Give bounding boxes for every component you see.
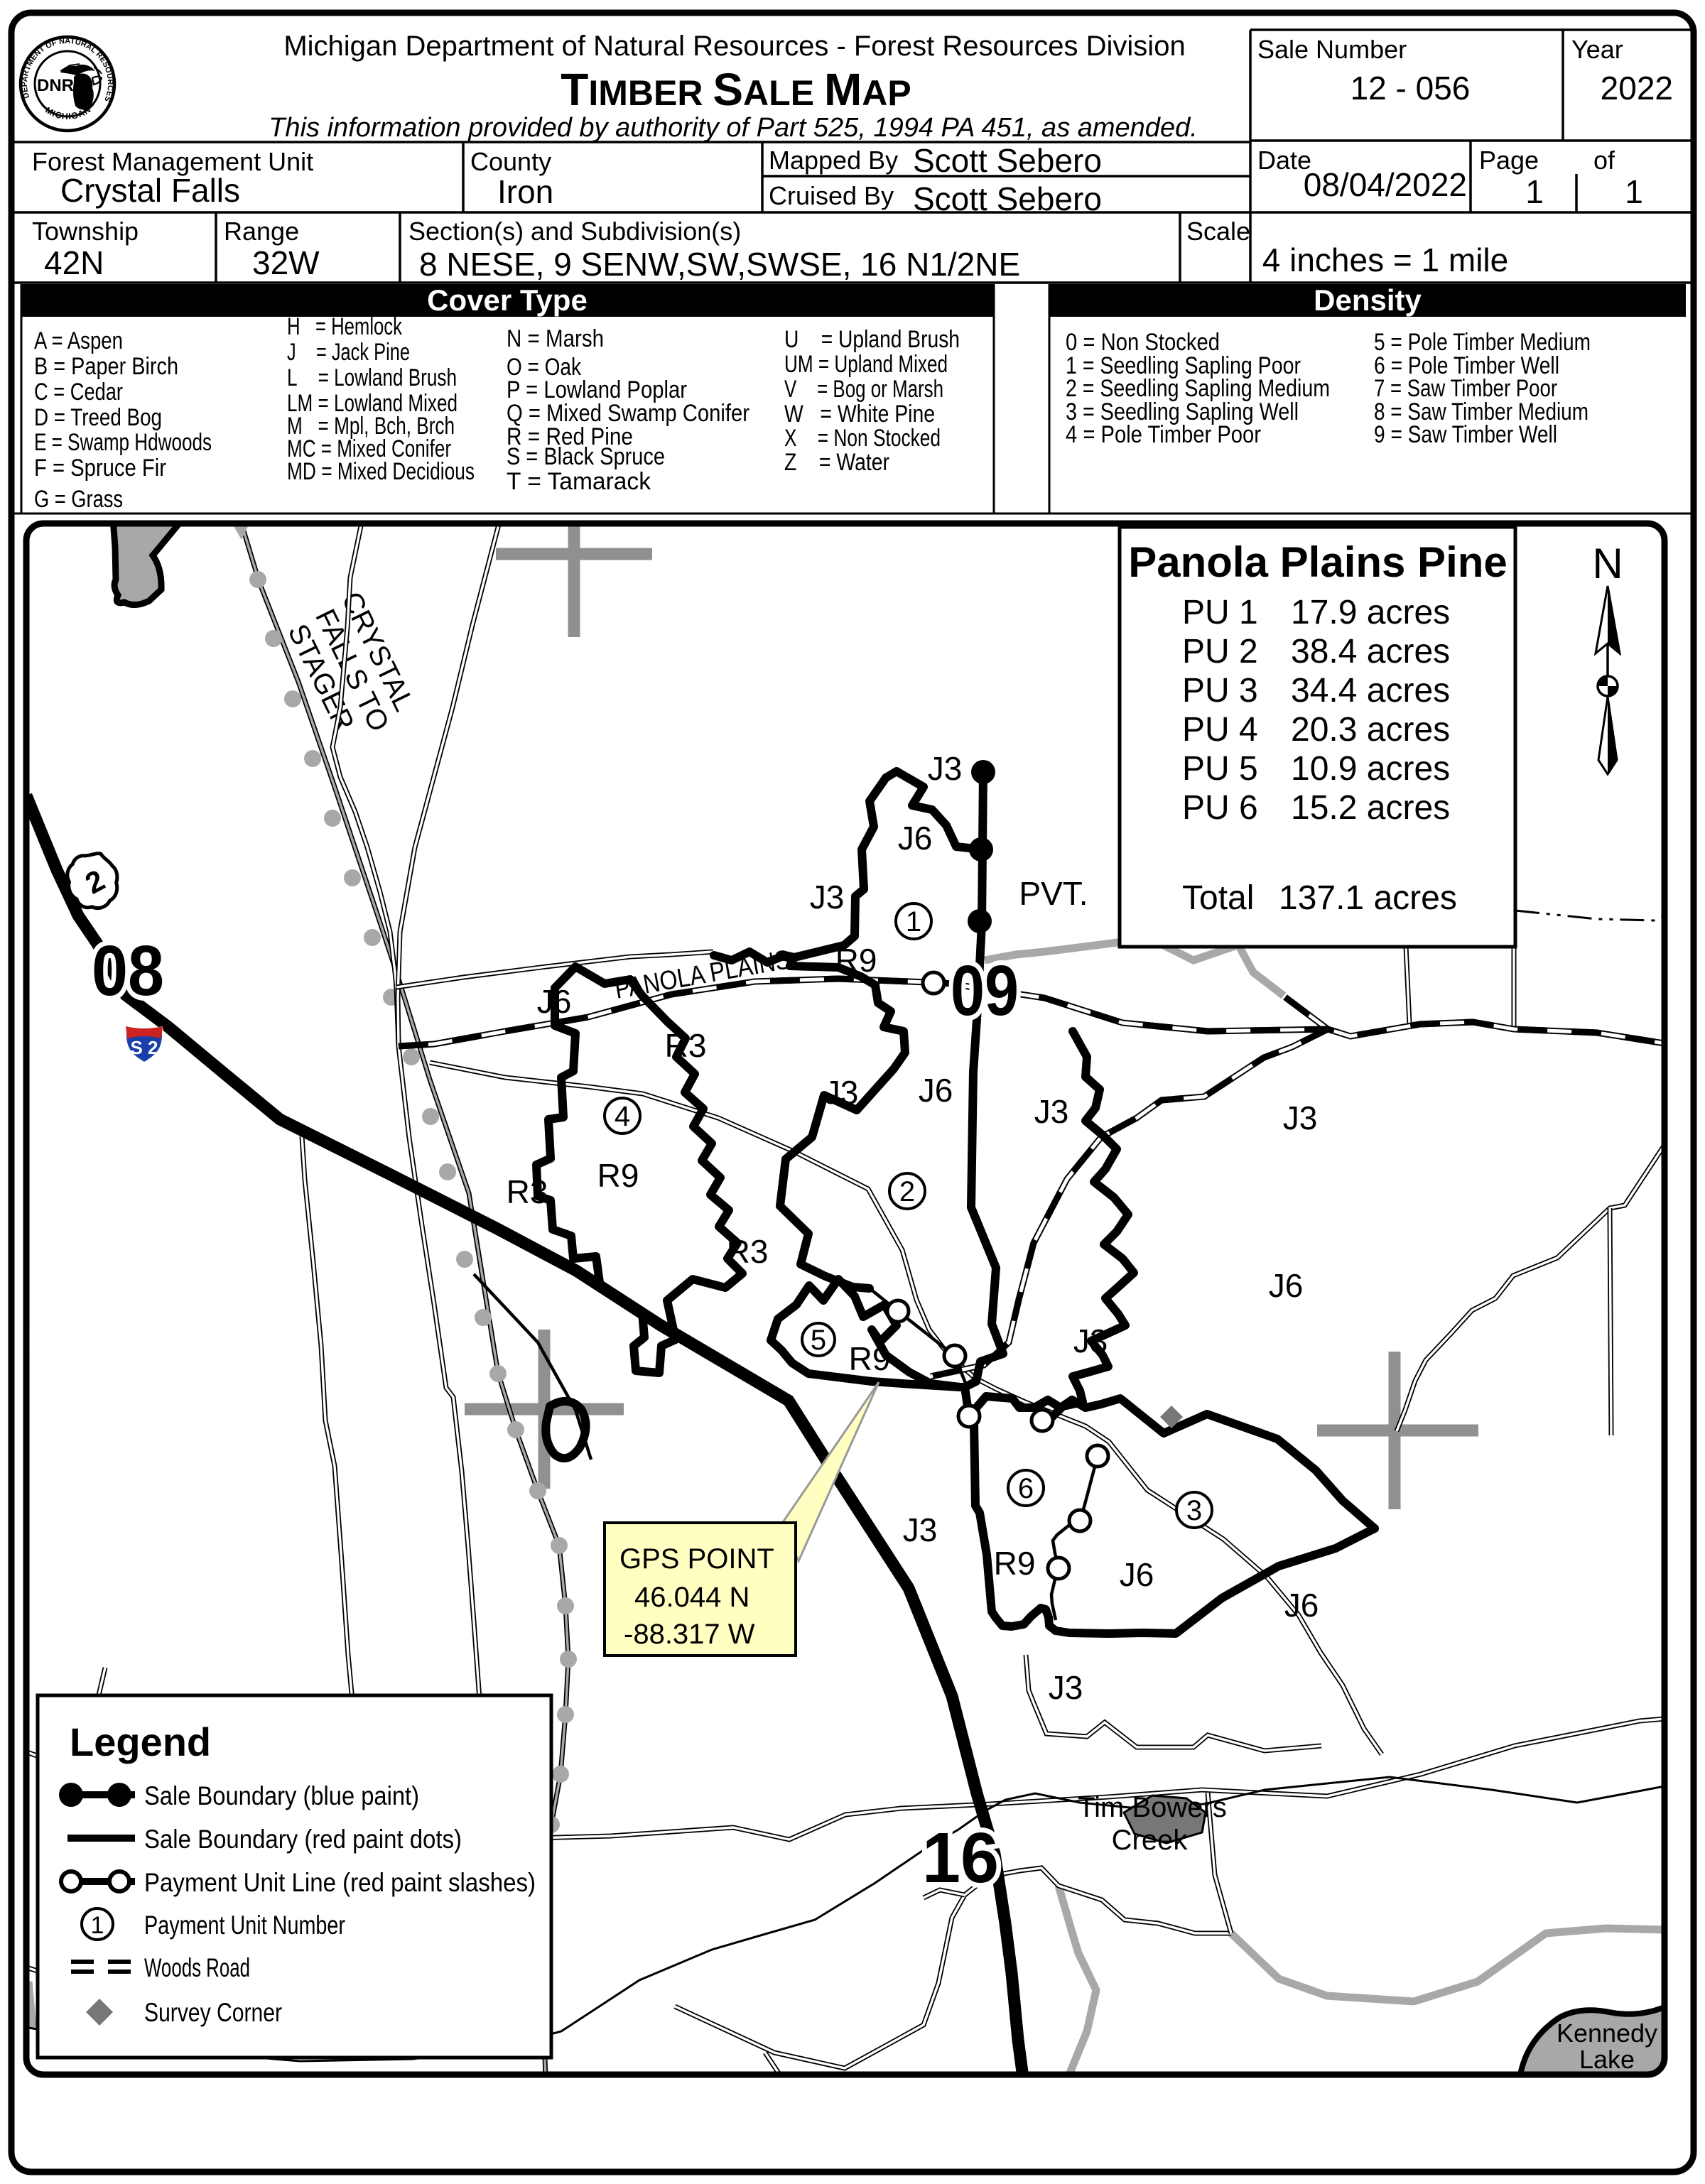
svg-text:6: 6 (1018, 1473, 1034, 1504)
svg-text:V = Bog or Marsh: V = Bog or Marsh (784, 376, 943, 403)
svg-text:R3: R3 (727, 1233, 769, 1270)
svg-text:08/04/2022: 08/04/2022 (1304, 166, 1467, 203)
svg-text:J6: J6 (919, 1072, 953, 1109)
svg-text:County: County (470, 147, 551, 176)
svg-text:10.9 acres: 10.9 acres (1291, 750, 1450, 788)
svg-text:Year: Year (1571, 35, 1623, 64)
svg-text:Woods Road: Woods Road (144, 1953, 250, 1982)
svg-text:Lake: Lake (1579, 2045, 1635, 2074)
svg-text:W = White Pine: W = White Pine (784, 401, 935, 428)
svg-text:Sale Boundary (red paint dots): Sale Boundary (red paint dots) (144, 1825, 462, 1854)
svg-text:Sale Number: Sale Number (1257, 35, 1407, 64)
svg-text:J3: J3 (903, 1511, 938, 1548)
svg-text:17.9 acres: 17.9 acres (1291, 594, 1450, 631)
svg-text:UM = Upland Mixed: UM = Upland Mixed (784, 351, 948, 378)
svg-text:42N: 42N (44, 244, 104, 281)
svg-text:J6: J6 (898, 820, 933, 857)
svg-text:Mapped By: Mapped By (769, 146, 898, 175)
svg-text:J3: J3 (1049, 1669, 1083, 1706)
svg-text:8 NESE, 9 SENW,SW,SWSE, 16: 8 NESE, 9 SENW,SW,SWSE, 16 N1/2NE (419, 246, 1020, 283)
svg-text:N = Marsh: N = Marsh (507, 325, 604, 352)
svg-text:S = Black Spruce: S = Black Spruce (507, 443, 665, 470)
svg-text:N: N (1592, 540, 1623, 587)
svg-text:of: of (1593, 146, 1615, 175)
svg-text:09: 09 (951, 951, 1019, 1031)
svg-text:J3: J3 (1283, 1099, 1318, 1136)
svg-text:4 = Pole Timber Poor: 4 = Pole Timber Poor (1066, 421, 1261, 448)
svg-text:H = Hemlock: H = Hemlock (287, 313, 403, 340)
svg-text:GPS POINT: GPS POINT (619, 1543, 774, 1575)
svg-text:Scott Sebero: Scott Sebero (913, 142, 1102, 179)
svg-text:S 2: S 2 (130, 1037, 158, 1058)
svg-text:PU 6: PU 6 (1182, 789, 1258, 827)
svg-text:Michigan Department of Natural: Michigan Department of Natural Resources… (283, 31, 1185, 62)
svg-text:2: 2 (899, 1176, 915, 1207)
svg-text:Survey Corner: Survey Corner (144, 1998, 282, 2027)
svg-text:1: 1 (91, 1912, 104, 1939)
svg-text:1: 1 (1625, 173, 1643, 210)
svg-text:Panola Plains Pine: Panola Plains Pine (1128, 538, 1508, 586)
svg-text:R9: R9 (849, 1340, 891, 1377)
svg-text:PU 5: PU 5 (1182, 750, 1258, 788)
svg-text:12 - 056: 12 - 056 (1351, 70, 1471, 107)
svg-text:15.2 acres: 15.2 acres (1291, 789, 1450, 827)
svg-text:PU 4: PU 4 (1182, 711, 1258, 749)
svg-text:E = Swamp Hdwoods: E = Swamp Hdwoods (34, 429, 212, 456)
svg-text:J3: J3 (824, 1074, 859, 1111)
svg-text:5: 5 (811, 1325, 826, 1356)
svg-text:L = Lowland Brush: L = Lowland Brush (287, 364, 457, 391)
svg-text:Kennedy: Kennedy (1557, 2019, 1657, 2048)
svg-text:This information provided by a: This information provided by authority o… (269, 113, 1198, 143)
svg-text:J6: J6 (1120, 1556, 1154, 1593)
svg-text:Section(s) and Subdivision(s): Section(s) and Subdivision(s) (408, 217, 741, 246)
svg-text:J6: J6 (1269, 1267, 1304, 1304)
svg-text:38.4 acres: 38.4 acres (1291, 633, 1450, 670)
svg-text:A = Aspen: A = Aspen (34, 327, 123, 354)
svg-text:R9: R9 (994, 1545, 1036, 1582)
svg-text:Creek: Creek (1112, 1825, 1189, 1856)
svg-text:Density: Density (1314, 283, 1422, 317)
svg-text:32W: 32W (252, 244, 320, 281)
svg-text:Payment Unit Line (red paint s: Payment Unit Line (red paint slashes) (144, 1868, 536, 1897)
svg-text:X = Non Stocked: X = Non Stocked (784, 425, 941, 452)
svg-text:PU 3: PU 3 (1182, 672, 1258, 710)
svg-text:34.4 acres: 34.4 acres (1291, 672, 1450, 710)
svg-text:T = Tamarack: T = Tamarack (507, 468, 651, 495)
svg-text:D = Treed Bog: D = Treed Bog (34, 404, 162, 431)
svg-text:J3: J3 (1073, 1322, 1108, 1359)
svg-text:Page: Page (1479, 146, 1539, 175)
svg-text:R9: R9 (597, 1157, 639, 1194)
svg-text:R3: R3 (507, 1173, 548, 1210)
svg-text:DNR: DNR (37, 76, 74, 95)
svg-text:MD = Mixed Decidious: MD = Mixed Decidious (287, 458, 475, 485)
svg-text:4 inches = 1 mile: 4 inches = 1 mile (1262, 241, 1508, 278)
svg-text:G = Grass: G = Grass (34, 486, 123, 513)
svg-text:R3: R3 (665, 1027, 707, 1064)
svg-text:PU 1: PU 1 (1182, 594, 1258, 631)
svg-text:Scale: Scale (1186, 217, 1250, 246)
svg-text:Range: Range (224, 217, 299, 246)
svg-text:08: 08 (92, 931, 164, 1011)
svg-text:Payment Unit Number: Payment Unit Number (144, 1911, 345, 1940)
svg-text:PU 2: PU 2 (1182, 633, 1258, 670)
svg-text:U = Upland Brush: U = Upland Brush (784, 326, 960, 353)
svg-text:1: 1 (1525, 173, 1544, 210)
svg-text:J6: J6 (1284, 1587, 1319, 1624)
svg-text:F = Spruce Fir: F = Spruce Fir (34, 455, 166, 482)
svg-text:PVT.: PVT. (1019, 875, 1088, 912)
svg-text:1: 1 (906, 906, 921, 938)
svg-text:9 = Saw Timber Well: 9 = Saw Timber Well (1374, 421, 1557, 448)
svg-text:TIMBER SALE MAP: TIMBER SALE MAP (561, 64, 911, 115)
svg-text:C = Cedar: C = Cedar (34, 379, 123, 406)
svg-text:J6: J6 (537, 983, 572, 1020)
svg-text:4: 4 (615, 1101, 630, 1132)
svg-text:2022: 2022 (1601, 70, 1673, 107)
svg-text:Iron: Iron (497, 173, 553, 210)
svg-text:137.1 acres: 137.1 acres (1279, 879, 1457, 917)
svg-text:20.3 acres: 20.3 acres (1291, 711, 1450, 749)
svg-text:R9: R9 (835, 942, 877, 979)
svg-text:Total: Total (1182, 879, 1254, 917)
svg-text:Z = Water: Z = Water (784, 449, 889, 476)
svg-text:B = Paper Birch: B = Paper Birch (34, 353, 178, 380)
svg-text:16: 16 (922, 1818, 999, 1898)
svg-text:Sale Boundary (blue paint): Sale Boundary (blue paint) (144, 1781, 419, 1810)
svg-text:J3: J3 (928, 750, 963, 787)
svg-text:J = Jack Pine: J = Jack Pine (287, 339, 410, 366)
svg-text:Cover Type: Cover Type (427, 283, 588, 317)
svg-text:3: 3 (1186, 1495, 1202, 1526)
svg-text:Scott Sebero: Scott Sebero (913, 180, 1102, 217)
svg-text:Tim Bowers: Tim Bowers (1078, 1792, 1227, 1823)
svg-text:J3: J3 (1034, 1093, 1069, 1130)
svg-text:Legend: Legend (70, 1720, 211, 1764)
svg-text:-88.317 W: -88.317 W (624, 1619, 755, 1650)
svg-text:Cruised By: Cruised By (769, 181, 894, 210)
svg-text:Crystal Falls: Crystal Falls (60, 172, 240, 209)
svg-text:Township: Township (32, 217, 139, 246)
svg-text:J3: J3 (810, 879, 845, 916)
svg-text:46.044 N: 46.044 N (634, 1582, 749, 1613)
